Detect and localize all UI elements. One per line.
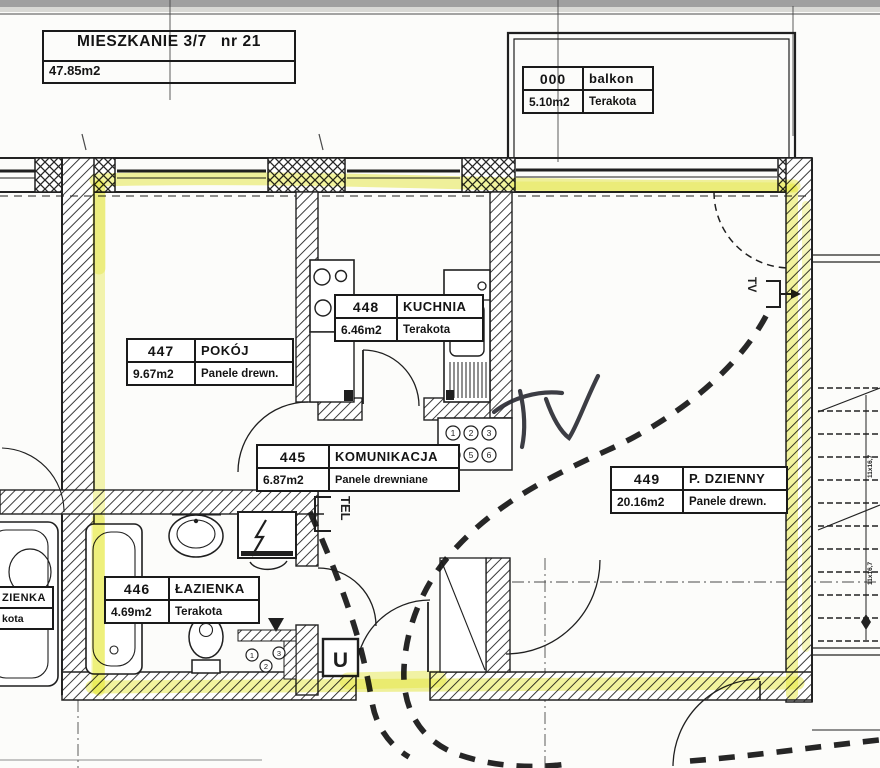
floor-plan-scan: 1 2 3 4 5 6 1 2 — [0, 0, 880, 768]
room-area: 20.16m2 — [612, 491, 682, 512]
room-label-balkon: 000 balkon 5.10m2 Terakota — [522, 66, 654, 114]
neighbor-room-floor: kota — [0, 609, 52, 628]
room-label-pokoj: 447 POKÓJ 9.67m2 Panele drewn. — [126, 338, 294, 386]
apartment-title: MIESZKANIE 3/7 nr 21 — [44, 32, 294, 60]
tel-socket-icon: TEL — [315, 496, 353, 531]
room-id: 445 — [258, 446, 328, 467]
apartment-name: MIESZKANIE 3/7 — [77, 33, 207, 59]
svg-text:5: 5 — [469, 450, 474, 460]
kitchen-counter — [310, 332, 354, 402]
svg-text:TV: TV — [745, 277, 759, 292]
room-name: KOMUNIKACJA — [328, 446, 458, 467]
bathroom-riser-shaft: 1 2 3 — [238, 618, 296, 679]
apartment-total-area: 47.85m2 — [44, 60, 294, 82]
room-name: ŁAZIENKA — [168, 578, 258, 599]
svg-text:3: 3 — [277, 649, 281, 658]
svg-text:2: 2 — [469, 428, 474, 438]
room-floor: Terakota — [396, 319, 482, 340]
room-floor: Terakota — [582, 91, 652, 112]
toilet-icon — [189, 616, 223, 673]
washbasin-icon — [169, 515, 223, 557]
electrical-panel-icon — [238, 512, 296, 569]
room-name: P. DZIENNY — [682, 468, 786, 489]
room-area: 6.46m2 — [336, 319, 396, 340]
room-area: 4.69m2 — [106, 601, 168, 622]
room-id: 448 — [336, 296, 396, 317]
neighbor-room-label-fragment: ZIENKA kota — [0, 586, 54, 630]
room-name: POKÓJ — [194, 340, 292, 361]
svg-text:1: 1 — [451, 428, 456, 438]
neighbor-room-name: ZIENKA — [0, 588, 52, 607]
svg-text:1: 1 — [250, 651, 254, 660]
room-label-kuchnia: 448 KUCHNIA 6.46m2 Terakota — [334, 294, 484, 342]
u-symbol-box: U — [323, 639, 358, 676]
svg-text:11x16,7: 11x16,7 — [867, 454, 874, 478]
svg-text:U: U — [333, 649, 348, 672]
room-id: 446 — [106, 578, 168, 599]
svg-text:6: 6 — [487, 450, 492, 460]
staircase: 11x16,7 11x16,7 — [812, 255, 880, 730]
room-floor: Panele drewn. — [194, 363, 292, 384]
scan-edge — [0, 0, 880, 12]
room-floor: Terakota — [168, 601, 258, 622]
room-id: 000 — [524, 68, 582, 89]
room-id: 447 — [128, 340, 194, 361]
svg-text:3: 3 — [487, 428, 492, 438]
room-label-p-dzienny: 449 P. DZIENNY 20.16m2 Panele drewn. — [610, 466, 788, 514]
room-area: 9.67m2 — [128, 363, 194, 384]
room-floor: Panele drewn. — [682, 491, 786, 512]
svg-text:11x16,7: 11x16,7 — [867, 561, 874, 585]
closet-icon — [440, 558, 486, 672]
room-label-komunikacja: 445 KOMUNIKACJA 6.87m2 Panele drewniane — [256, 444, 460, 492]
room-label-lazienka: 446 ŁAZIENKA 4.69m2 Terakota — [104, 576, 260, 624]
room-floor: Panele drewniane — [328, 469, 458, 490]
apartment-unit: nr 21 — [221, 33, 261, 59]
room-name: KUCHNIA — [396, 296, 482, 317]
room-area: 5.10m2 — [524, 91, 582, 112]
title-block: MIESZKANIE 3/7 nr 21 47.85m2 — [42, 30, 296, 84]
svg-text:2: 2 — [264, 662, 268, 671]
room-id: 449 — [612, 468, 682, 489]
svg-text:TEL: TEL — [338, 496, 353, 521]
room-name: balkon — [582, 68, 652, 89]
room-area: 6.87m2 — [258, 469, 328, 490]
